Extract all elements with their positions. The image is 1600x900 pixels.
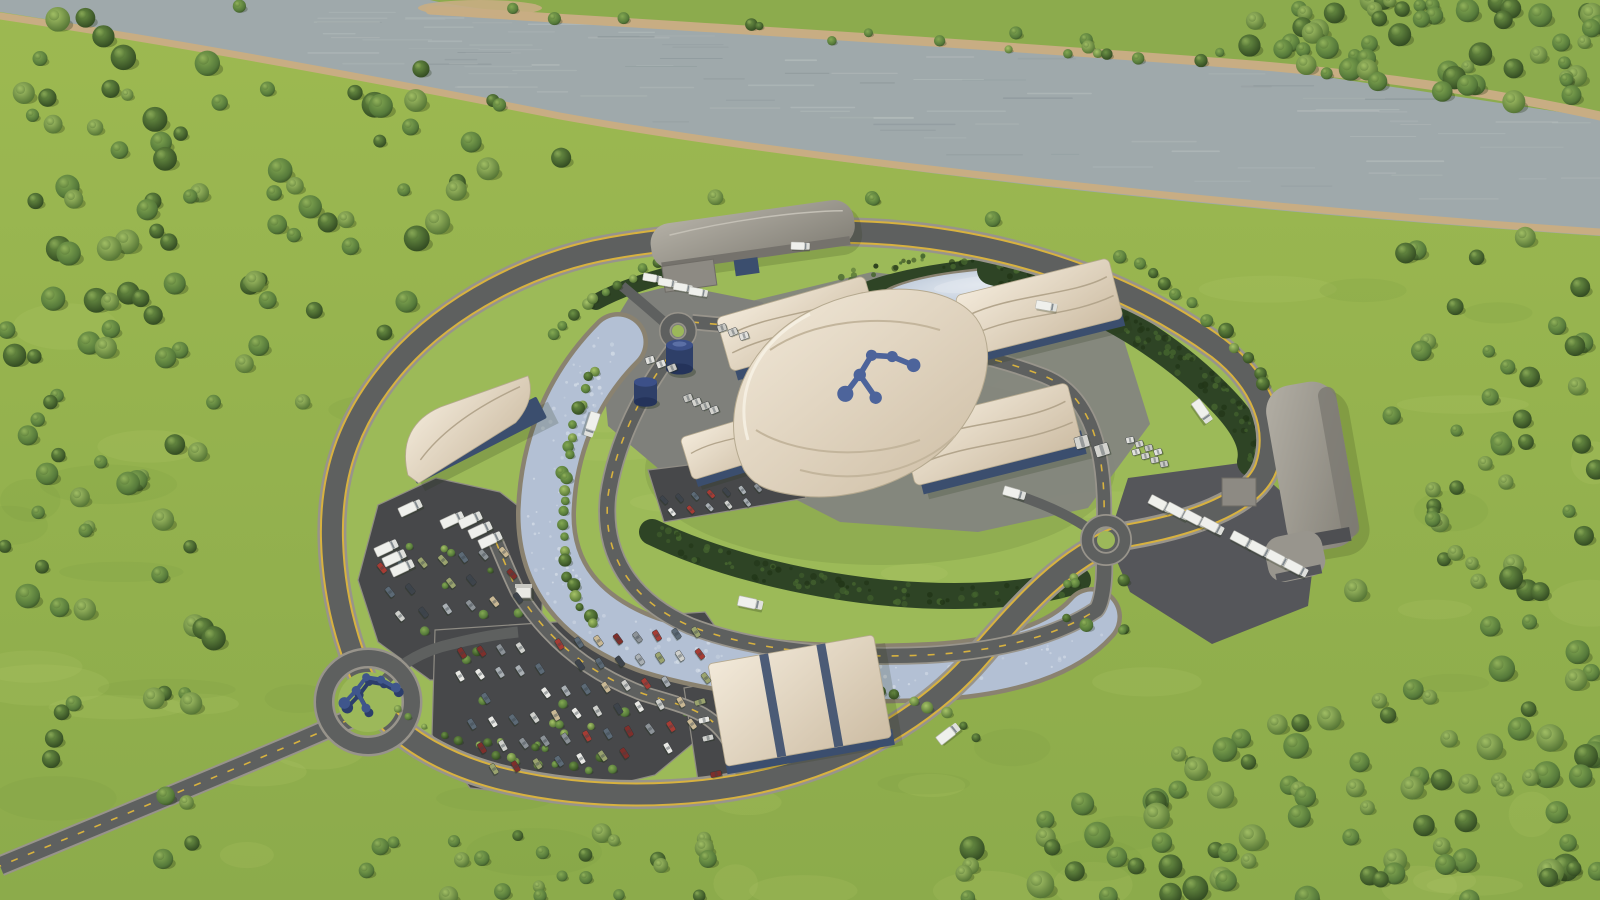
roundabout-east: [1087, 521, 1125, 559]
roundabout-east-island: [1097, 531, 1115, 549]
sand-spit: [418, 0, 542, 16]
roundabout-north-island: [672, 325, 684, 337]
aerial-rendering: [0, 0, 1600, 900]
east-small-box: [1222, 478, 1256, 506]
blue-container: [734, 257, 760, 276]
scene-canvas: [0, 0, 1600, 900]
tank-small: [634, 377, 660, 409]
